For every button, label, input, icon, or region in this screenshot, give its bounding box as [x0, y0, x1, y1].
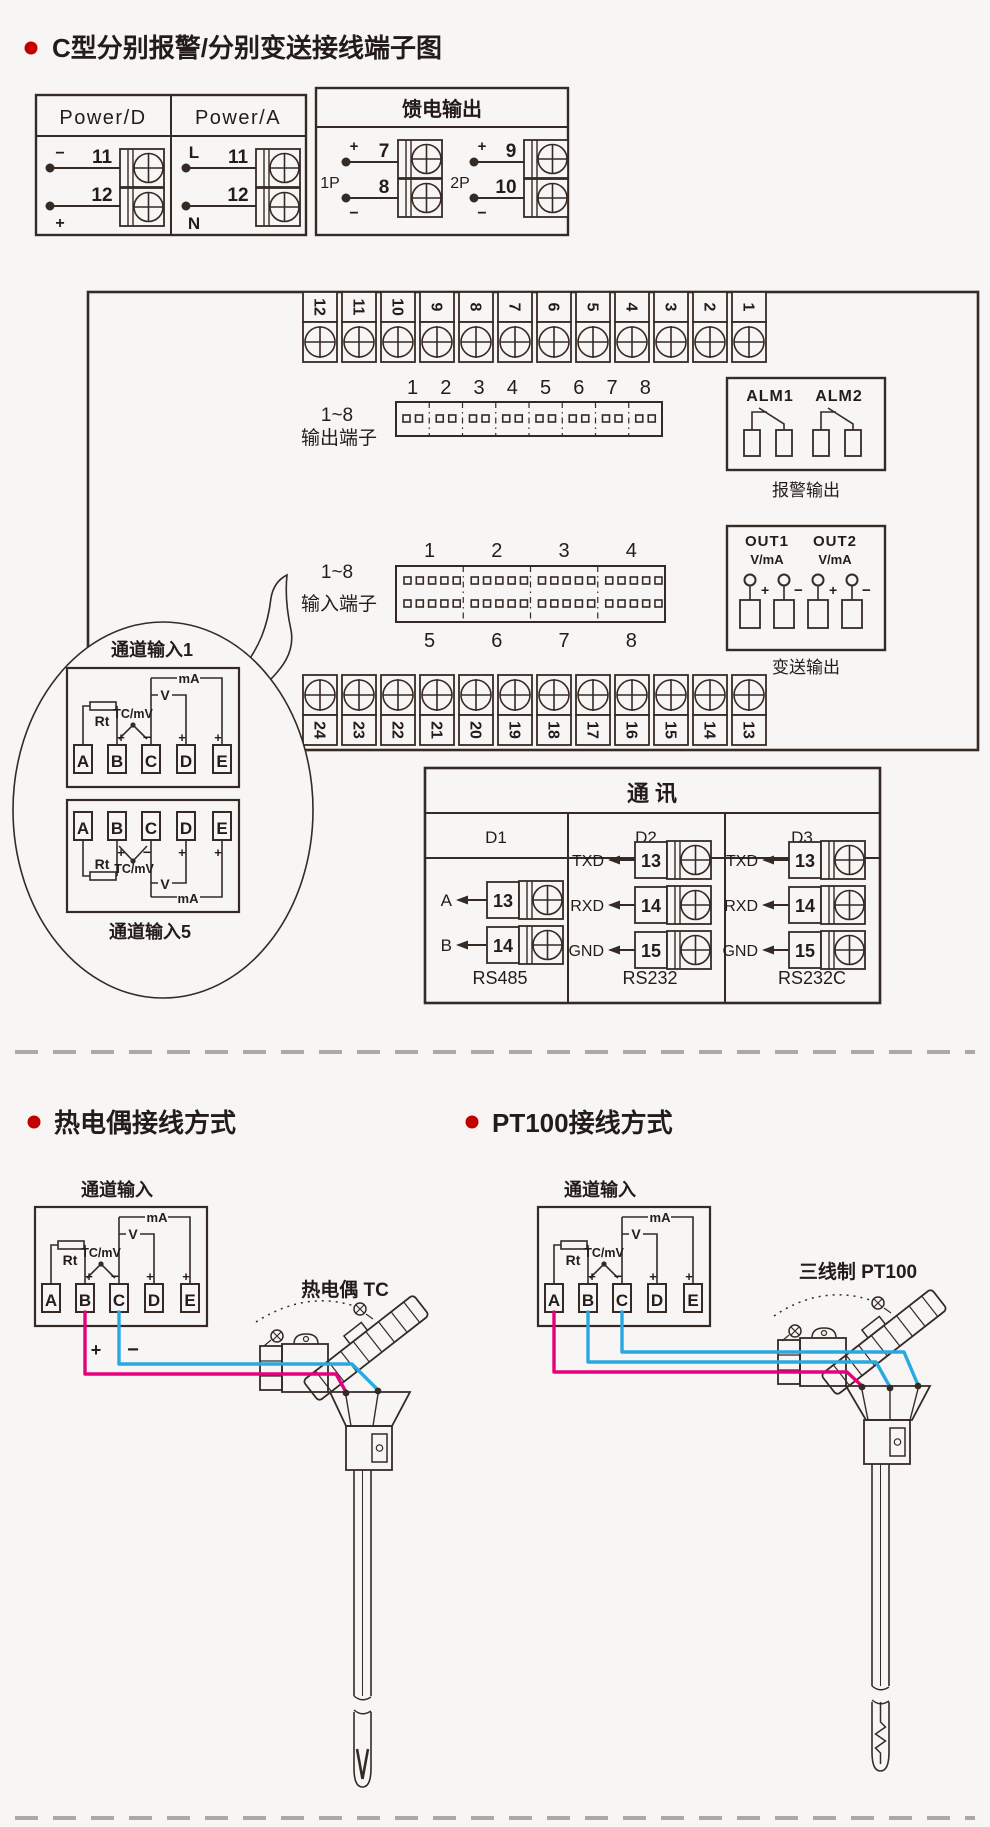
screw-terminal: [519, 926, 563, 964]
connector-pin: [441, 600, 448, 607]
communication-table: 通 讯 D1 D2 D3 A 13 B 14 RS485 TXD 13 RXD: [425, 768, 880, 1003]
plus-sign: +: [214, 845, 222, 860]
channel-callout-balloon: 通道输入1 A B C D E + − + + Rt TC/mV V mA: [13, 575, 313, 998]
output-channel-number: 4: [507, 377, 518, 399]
connector-pin: [453, 600, 460, 607]
connector-pin: [482, 415, 489, 422]
input-channel-number: 3: [559, 540, 570, 562]
connector-pin: [484, 600, 491, 607]
pin-label: TXD: [726, 853, 758, 870]
terminal-number: 12: [310, 298, 327, 316]
terminal-a: A: [77, 819, 89, 838]
feed-num-10: 10: [495, 177, 516, 198]
connector-pin: [563, 577, 570, 584]
connector-pin: [515, 415, 522, 422]
plus-sign: +: [761, 582, 769, 598]
page-title: C型分别报警/分别变送接线端子图: [25, 33, 443, 63]
connector-pin: [496, 600, 503, 607]
feed-sign: +: [478, 138, 487, 155]
connector-pin: [539, 577, 546, 584]
pin-label: TXD: [572, 853, 604, 870]
screw-terminal: [303, 675, 337, 715]
feed-sign: +: [350, 138, 359, 155]
input-channel-number: 8: [626, 630, 637, 652]
screw-terminal: [256, 149, 300, 187]
terminal-number: 21: [427, 721, 444, 739]
feed-num-7: 7: [379, 141, 390, 162]
screw-terminal: [537, 322, 571, 362]
output-terminal-row: 1~8 输出端子 12345678: [301, 377, 662, 449]
connector-pin: [630, 577, 637, 584]
out2-label: OUT2: [813, 533, 857, 550]
terminal-number: 4: [622, 303, 639, 312]
alarm-output-caption: 报警输出: [772, 481, 840, 500]
terminal-number: 3: [661, 303, 678, 312]
connector-pin: [496, 577, 503, 584]
terminal-number: 18: [544, 721, 561, 739]
terminal-number: 15: [661, 721, 678, 739]
rs232-caption: RS232: [622, 968, 677, 988]
group-1p-label: 1P: [320, 175, 340, 192]
connector-pin: [618, 577, 625, 584]
input-channel-number: 6: [491, 630, 502, 652]
connector-pin: [539, 600, 546, 607]
terminal-number: 19: [505, 721, 522, 739]
tc-section-title: 热电偶接线方式: [54, 1108, 236, 1138]
connector-pin: [471, 577, 478, 584]
pin-num: 15: [795, 941, 815, 961]
connector-pin: [416, 415, 423, 422]
top-terminal-strip: 121110987654321: [303, 292, 766, 362]
connector-pin: [606, 600, 613, 607]
pin-label: GND: [568, 943, 604, 960]
bottom-terminal-strip: 242322212019181716151413: [303, 675, 766, 745]
eye-screw-icon: [782, 1325, 801, 1341]
tc-label: TC/mV: [114, 862, 154, 876]
screw-terminal: [693, 322, 727, 362]
power-d-sign-1: −: [55, 145, 64, 162]
pin-num: 13: [795, 851, 815, 871]
channel-input-box-5: A B C D E + − + + Rt TC/mV V mA: [67, 800, 239, 912]
pt100-section: PT100接线方式 通道输入 三线制 PT100: [466, 1108, 948, 1771]
connector-pin: [484, 577, 491, 584]
alm2-label: ALM2: [815, 388, 863, 405]
screw-terminal: [120, 188, 164, 226]
connector-pin: [551, 600, 558, 607]
input-channel-number: 2: [491, 540, 502, 562]
feed-header: 馈电输出: [402, 97, 482, 121]
col-d1-header: D1: [485, 828, 507, 847]
connector-pin: [436, 415, 443, 422]
channel-input-box-1: [67, 668, 239, 787]
input-range-label: 1~8: [321, 562, 353, 583]
out2-unit: V/mA: [818, 552, 852, 567]
feed-num-9: 9: [506, 141, 517, 162]
connector-pin: [453, 577, 460, 584]
terminal-number: 9: [427, 303, 444, 312]
pin-label: RXD: [724, 898, 758, 915]
connector-pin: [618, 600, 625, 607]
group-2p-label: 2P: [450, 175, 470, 192]
connector-pin: [655, 577, 662, 584]
connector-pin: [549, 415, 556, 422]
rs485-column: A 13 B 14 RS485: [441, 881, 563, 988]
screw-terminal: [459, 322, 493, 362]
page-title-text: C型分别报警/分别变送接线端子图: [52, 33, 442, 63]
screw-terminal: [667, 931, 711, 969]
screw-terminal: [342, 675, 376, 715]
connector-pin: [588, 577, 595, 584]
input-terminals-label: 输入端子: [301, 593, 377, 615]
terminal-number: 20: [466, 721, 483, 739]
connector-pin: [615, 415, 622, 422]
connector-pin: [404, 600, 411, 607]
terminal-number: 2: [700, 303, 717, 312]
terminal-number: 1: [739, 303, 756, 312]
output-channel-number: 1: [407, 377, 418, 399]
power-a-sign-1: L: [189, 143, 199, 162]
rt-label: Rt: [95, 856, 110, 872]
probe-block: [346, 1426, 392, 1470]
minus-sign: −: [862, 582, 871, 599]
output-connector: 12345678: [403, 377, 655, 436]
connector-pin: [643, 577, 650, 584]
screw-terminal: [120, 149, 164, 187]
pin-num: 13: [641, 851, 661, 871]
connector-pin: [508, 577, 515, 584]
relay-contact-icon: [821, 408, 853, 430]
out1-unit: V/mA: [750, 552, 784, 567]
feed-num-8: 8: [379, 177, 390, 198]
connector-pin: [508, 600, 515, 607]
screw-terminal: [524, 140, 568, 178]
red-bullet-icon: [28, 1116, 41, 1129]
pin-num: 14: [493, 936, 513, 956]
pin-label: GND: [722, 943, 758, 960]
screw-terminal: [576, 675, 610, 715]
output-channel-number: 8: [640, 377, 651, 399]
connector-pin: [403, 415, 410, 422]
minus-sign: −: [127, 1339, 139, 1361]
plus-sign: +: [829, 582, 837, 598]
pt100-probe: [774, 1281, 947, 1771]
connector-pin: [429, 577, 436, 584]
probe-neck: [330, 1392, 410, 1426]
eye-screw-icon: [264, 1330, 283, 1346]
connector-pin: [470, 415, 477, 422]
screw-terminal: [381, 675, 415, 715]
tc-junction-mark: [357, 1749, 368, 1779]
terminal-number: 6: [544, 303, 561, 312]
pin-num: 15: [641, 941, 661, 961]
screw-terminal: [576, 322, 610, 362]
screw-terminal: [498, 675, 532, 715]
input-terminal-row: 1~8 输入端子 15263748: [301, 540, 665, 652]
transmit-output-caption: 变送输出: [772, 658, 840, 677]
screw-terminal: [524, 179, 568, 217]
screw-terminal: [256, 188, 300, 226]
screw-terminal: [821, 841, 865, 879]
screw-terminal: [420, 322, 454, 362]
screw-terminal: [732, 675, 766, 715]
connector-pin: [404, 577, 411, 584]
power-d-sign-2: +: [55, 215, 64, 232]
power-d-header: Power/D: [59, 107, 146, 129]
out1-label: OUT1: [745, 533, 789, 550]
alarm-output-box: ALM1 ALM2: [727, 378, 885, 470]
screw-terminal: [342, 322, 376, 362]
connector-pin: [503, 415, 510, 422]
connector-pin: [429, 600, 436, 607]
screw-terminal: [615, 322, 649, 362]
thermocouple-probe: [256, 1287, 429, 1787]
channel-input-1-label: 通道输入1: [111, 639, 193, 660]
rs232c-column: TXD 13 RXD 14 GND 15 RS232C: [722, 841, 865, 988]
screw-terminal: [459, 675, 493, 715]
input-channel-number: 5: [424, 630, 435, 652]
screw-terminal: [381, 322, 415, 362]
output-channel-number: 7: [607, 377, 618, 399]
rs232c-caption: RS232C: [778, 968, 846, 988]
screw-terminal: [667, 886, 711, 924]
terminal-number: 17: [583, 721, 600, 739]
connector-pin: [582, 415, 589, 422]
pin-num: 14: [641, 896, 661, 916]
connector-pin: [520, 577, 527, 584]
pt-section-title: PT100接线方式: [492, 1108, 673, 1138]
output-terminals-label: 输出端子: [301, 427, 377, 449]
v-label: V: [160, 876, 170, 892]
screw-terminal: [537, 675, 571, 715]
connector-pin: [575, 577, 582, 584]
screw-terminal: [654, 675, 688, 715]
pin-label: B: [441, 936, 452, 955]
eye-screw-icon: [354, 1303, 373, 1319]
connector-pin: [441, 577, 448, 584]
terminal-d: D: [180, 819, 192, 838]
feed-output-block: 馈电输出 1P + 7 8 − 2P + 9 10 −: [316, 88, 568, 235]
connector-pin: [655, 600, 662, 607]
power-d-num-1: 11: [92, 147, 113, 168]
channel-input-box: [35, 1207, 207, 1326]
connector-pin: [569, 415, 576, 422]
eye-screw-icon: [872, 1297, 891, 1313]
rs232-column: TXD 13 RXD 14 GND 15 RS232: [568, 841, 711, 988]
pin-label: A: [441, 891, 453, 910]
power-a-num-2: 12: [227, 185, 248, 206]
channel-input-5-label: 通道输入5: [109, 921, 191, 942]
red-bullet-icon: [25, 42, 38, 55]
terminal-number: 10: [388, 298, 405, 316]
input-channel-number: 4: [626, 540, 637, 562]
relay-contact-icon: [752, 408, 784, 430]
connector-pin: [588, 600, 595, 607]
screw-terminal: [398, 140, 442, 178]
alm1-label: ALM1: [746, 388, 794, 405]
transmit-output-box: OUT1 V/mA OUT2 V/mA + − + −: [727, 526, 885, 650]
rtd-element-mark: [876, 1702, 886, 1764]
screw-terminal: [303, 322, 337, 362]
input-channel-number: 7: [559, 630, 570, 652]
output-channel-number: 2: [440, 377, 451, 399]
terminal-number: 14: [700, 721, 717, 739]
screw-terminal: [654, 322, 688, 362]
terminal-number: 23: [349, 721, 366, 739]
terminal-e: E: [216, 819, 227, 838]
terminal-number: 8: [466, 303, 483, 312]
wiring-diagram-page: A B C D E Rt TC/mV V mA + − + + C型分别报警/分…: [0, 0, 990, 1827]
connector-pin: [520, 600, 527, 607]
output-channel-number: 6: [573, 377, 584, 399]
connector-pin: [636, 415, 643, 422]
output-channel-number: 3: [474, 377, 485, 399]
probe-block: [864, 1420, 910, 1464]
connector-pin: [449, 415, 456, 422]
rs485-caption: RS485: [472, 968, 527, 988]
screw-terminal: [398, 179, 442, 217]
input-channel-number: 1: [424, 540, 435, 562]
pt-probe-label: 三线制 PT100: [799, 1260, 917, 1283]
channel-input-box: [538, 1207, 710, 1326]
terminal-number: 11: [349, 299, 366, 316]
power-a-num-1: 11: [228, 147, 249, 168]
screw-terminal: [732, 322, 766, 362]
screw-terminal: [519, 881, 563, 919]
probe-nut: [260, 1346, 282, 1390]
feed-sign: −: [477, 205, 486, 222]
screw-terminal: [420, 675, 454, 715]
screw-terminal: [667, 841, 711, 879]
thermocouple-section: 热电偶接线方式 通道输入 热电偶 TC: [28, 1108, 430, 1787]
minus-sign: −: [794, 582, 803, 599]
pin-num: 13: [493, 891, 513, 911]
screw-terminal: [821, 886, 865, 924]
terminal-number: 7: [505, 303, 522, 312]
connector-pin: [563, 600, 570, 607]
pin-label: RXD: [570, 898, 604, 915]
plus-sign: +: [91, 1340, 102, 1360]
screw-terminal: [498, 322, 532, 362]
channel-input-label: 通道输入: [564, 1179, 636, 1200]
connector-pin: [575, 600, 582, 607]
channel-input-label: 通道输入: [81, 1179, 153, 1200]
output-channel-number: 5: [540, 377, 551, 399]
connector-pin: [603, 415, 610, 422]
connector-pin: [630, 600, 637, 607]
output-range-label: 1~8: [321, 405, 353, 426]
feed-sign: −: [349, 205, 358, 222]
power-d-num-2: 12: [91, 185, 112, 206]
terminal-number: 24: [310, 721, 327, 739]
connector-pin: [551, 577, 558, 584]
connector-pin: [416, 577, 423, 584]
power-terminal-block: Power/D Power/A − 11 + 12 L 11 N 12: [36, 95, 306, 235]
input-connector: 15263748: [404, 540, 662, 652]
connector-pin: [416, 600, 423, 607]
power-a-header: Power/A: [195, 107, 281, 129]
connector-pin: [606, 577, 613, 584]
screw-terminal: [615, 675, 649, 715]
comm-title: 通 讯: [627, 781, 677, 806]
screw-terminal: [693, 675, 727, 715]
connector-pin: [471, 600, 478, 607]
terminal-b: B: [111, 819, 123, 838]
connector-pin: [643, 600, 650, 607]
terminal-number: 5: [583, 303, 600, 312]
wiring-diagram: A B C D E Rt TC/mV V mA + − + + C型分别报警/分…: [0, 0, 990, 1827]
ma-label: mA: [178, 891, 200, 906]
power-a-sign-2: N: [188, 214, 200, 233]
connector-pin: [648, 415, 655, 422]
screw-terminal: [821, 931, 865, 969]
tc-probe-label: 热电偶 TC: [301, 1278, 389, 1301]
terminal-number: 16: [622, 721, 639, 739]
terminal-number: 13: [739, 721, 756, 739]
terminal-c: C: [145, 819, 157, 838]
pin-num: 14: [795, 896, 815, 916]
connector-pin: [536, 415, 543, 422]
plus-sign: +: [178, 845, 186, 860]
red-bullet-icon: [466, 1116, 479, 1129]
terminal-number: 22: [388, 721, 405, 739]
